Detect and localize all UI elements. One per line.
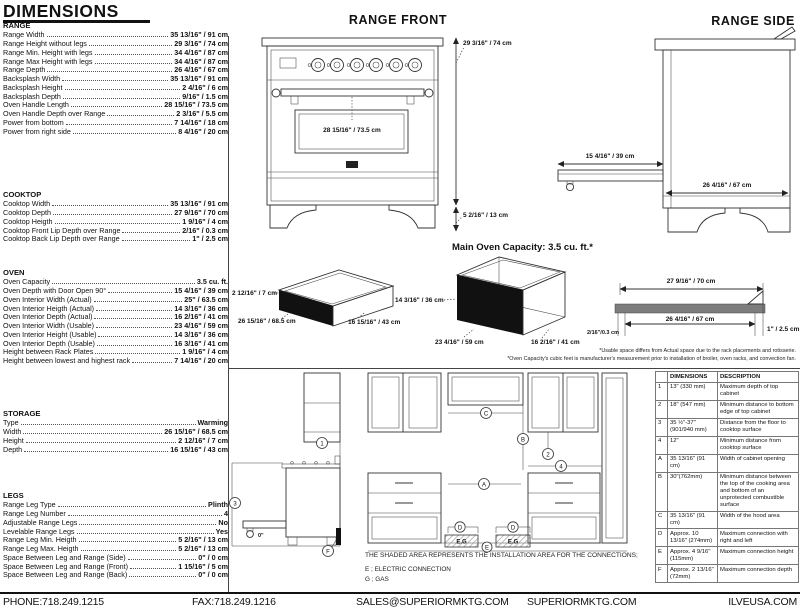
oven-width-label: 23 4/16" / 59 cm — [435, 339, 484, 346]
table-cell-dimension: 13" (330 mm) — [668, 382, 718, 400]
table-cell-description: Maximum depth of top cabinet — [718, 382, 799, 400]
svg-text:F: F — [326, 550, 330, 556]
back-lip-label: 1" / 2.5 cm — [767, 326, 800, 333]
spec-value: 0" / 0 cm — [198, 553, 228, 562]
spec-column: RANGE Range Width 35 13/16" / 91 cm Rang… — [3, 0, 228, 592]
marker-b: B — [518, 405, 529, 470]
table-cell-dimension: 35 13/16" (91 cm) — [668, 511, 718, 529]
section-oven: OVEN Oven Capacity 3.5 cu. ft. Oven Dept… — [3, 268, 228, 365]
marker-c: C — [448, 408, 523, 419]
dotted-leader — [47, 71, 172, 72]
spec-value: 23 4/16" / 59 cm — [174, 321, 228, 330]
marker-4: 4 — [528, 461, 602, 472]
dotted-leader — [52, 283, 195, 284]
section-storage: STORAGE Type Warming Width 26 15/16" / 6… — [3, 409, 228, 454]
dotted-leader — [63, 98, 180, 99]
upper-left-cabinets — [368, 373, 441, 432]
spec-value: 5 2/16" / 13 cm — [178, 535, 228, 544]
connection-area-right: E.G — [496, 535, 530, 547]
spec-row: Height between Rack Plates 1 9/16" / 4 c… — [3, 348, 228, 357]
oven-handle — [272, 89, 433, 104]
spec-label: Oven Depth with Door Open 90° — [3, 286, 106, 295]
spec-label: Range Leg Min. Heigth — [3, 535, 77, 544]
dimensions-table: DIMENSIONS DESCRIPTION 1 13" (330 mm) Ma… — [655, 371, 799, 583]
table-cell-dimension: 35 ½"-37" (901/940 mm) — [668, 418, 718, 436]
table-body: 1 13" (330 mm) Maximum depth of top cabi… — [656, 382, 799, 582]
plinth-legs — [270, 205, 435, 228]
dotted-leader — [107, 115, 174, 116]
marker-d-left: D — [448, 522, 478, 533]
marker-d-right: D — [496, 522, 530, 533]
spec-value: 16 15/16" / 43 cm — [170, 445, 228, 454]
header-description: DESCRIPTION — [718, 372, 799, 383]
spec-value: 34 4/16" / 87 cm — [174, 57, 228, 66]
table-row: F Approx. 2 13/16" (72mm) Maximum connec… — [656, 565, 799, 583]
table-cell-ref: E — [656, 547, 668, 565]
tall-cabinet — [602, 373, 627, 543]
spec-value: 2 4/16" / 6 cm — [182, 83, 228, 92]
side-depth-label: 26 4/16" / 67 cm — [703, 182, 752, 189]
spec-value: 25" / 63.5 cm — [184, 295, 228, 304]
footer-divider — [0, 592, 800, 594]
spec-label: Oven Interior Height (Usable) — [3, 330, 96, 339]
footer-website: SUPERIORMKTG.COM — [527, 596, 636, 608]
table-row: C 35 13/16" (91 cm) Width of the hood ar… — [656, 511, 799, 529]
depth-dimension: 26 4/16" / 67 cm — [666, 182, 788, 193]
spec-rows: Range Leg Type Plinth Range Leg Number 4… — [3, 501, 228, 580]
table-row: 2 18" (547 mm) Minimum distance to botto… — [656, 400, 799, 418]
svg-text:C: C — [484, 412, 489, 418]
cooktop-top-width-label: 27 9/16" / 70 cm — [667, 278, 716, 285]
dotted-leader — [73, 133, 176, 134]
spec-label: Type — [3, 418, 19, 427]
table-cell-description: Minimum distance from cooktop surface — [718, 436, 799, 454]
spec-row: Depth 16 15/16" / 43 cm — [3, 445, 228, 454]
spec-label: Cooktop Depth — [3, 208, 51, 217]
spec-row: Range Leg Max. Heigth 5 2/16" / 13 cm — [3, 544, 228, 553]
svg-text:E: E — [485, 546, 489, 552]
oven-height-label: 14 3/16" / 36 cm — [395, 297, 444, 304]
table-cell-ref: D — [656, 529, 668, 547]
dotted-leader — [129, 576, 196, 577]
control-knobs — [308, 59, 421, 72]
legend-electric: E ; ELECTRIC CONNECTION — [365, 566, 451, 573]
table-cell-description: Distance from the floor to cooktop surfa… — [718, 418, 799, 436]
spec-value: Plinth — [208, 500, 228, 509]
svg-text:E.G: E.G — [456, 540, 467, 546]
header-dimensions: DIMENSIONS — [668, 372, 718, 383]
spec-label: Power from bottom — [3, 118, 64, 127]
spec-value: 28 15/16" / 73.5 cm — [164, 100, 228, 109]
spec-row: Type Warming — [3, 419, 228, 428]
marker-a: A — [448, 479, 521, 490]
table-cell-dimension: Approx. 4 9/16" (115mm) — [668, 547, 718, 565]
spec-label: Height between lowest and highest rack — [3, 356, 130, 365]
dotted-leader — [66, 124, 173, 125]
drawer-width-label: 26 15/16" / 68.5 cm — [238, 318, 296, 325]
table-cell-ref: A — [656, 454, 668, 472]
svg-text:E.G: E.G — [508, 540, 519, 546]
spec-row: Oven Depth with Door Open 90° 15 4/16" /… — [3, 286, 228, 295]
section-range: RANGE Range Width 35 13/16" / 91 cm Rang… — [3, 21, 228, 136]
spec-row: Height between lowest and highest rack 7… — [3, 356, 228, 365]
spec-row: Range Max Height with legs 34 4/16" / 87… — [3, 57, 228, 66]
dotted-leader — [26, 442, 176, 443]
svg-text:D: D — [511, 526, 516, 532]
spec-label: Cooktop Back Lip Depth over Range — [3, 234, 120, 243]
table-cell-description: Maximum connection depth — [718, 565, 799, 583]
installation-note: THE SHADED AREA REPRESENTS THE INSTALLAT… — [365, 552, 657, 559]
spec-value: 1" / 2.5 cm — [192, 234, 228, 243]
section-title: STORAGE — [3, 409, 228, 419]
marker-e: E — [482, 542, 492, 552]
dotted-leader — [65, 89, 181, 90]
legs-height-label: 5 2/16" / 13 cm — [463, 212, 508, 219]
marker-1: 1 — [317, 438, 328, 449]
table-cell-ref: C — [656, 511, 668, 529]
dotted-leader — [23, 433, 162, 434]
dotted-leader — [53, 214, 172, 215]
dotted-leader — [81, 550, 177, 551]
installation-side-view: 1 0" 3 F — [228, 370, 364, 560]
oven-interior-diagram: 14 3/16" / 36 cm 23 4/16" / 59 cm 16 2/1… — [385, 252, 597, 348]
spec-row: Range Leg Min. Heigth 5 2/16" / 13 cm — [3, 536, 228, 545]
table-row: B 30"(762mm) Minimum distance between th… — [656, 472, 799, 511]
spec-label: Oven Interior Depth (Actual) — [3, 312, 92, 321]
spec-label: Cooktop Heigth — [3, 217, 53, 226]
spec-row: Space Between Leg and Range (Back) 0" / … — [3, 571, 228, 580]
spec-row: Oven Handle Depth over Range 2 3/16" / 5… — [3, 109, 228, 118]
spec-label: Cooktop Front Lip Depth over Range — [3, 226, 120, 235]
table-cell-ref: 2 — [656, 400, 668, 418]
footer-email: SALES@SUPERIORMKTG.COM — [356, 596, 509, 608]
spec-label: Range Depth — [3, 65, 45, 74]
open-door — [558, 170, 663, 191]
spec-value: Warming — [198, 418, 228, 427]
spec-value: 2 12/16" / 7 cm — [178, 436, 228, 445]
dotted-leader — [58, 506, 206, 507]
oven-depth-label: 16 2/16" / 41 cm — [531, 339, 580, 346]
wall-cabinet — [304, 373, 340, 442]
legs-dimension: 5 2/16" / 13 cm — [456, 207, 508, 231]
lip-labels: 2/16"/0.3 cm 1" / 2.5 cm — [587, 326, 800, 336]
dotted-leader — [24, 451, 168, 452]
spec-row: Backsplash Depth 9/16" / 1.5 cm — [3, 92, 228, 101]
table-cell-description: Minimum distance to bottom edge of top c… — [718, 400, 799, 418]
top-width-dimension: 27 9/16" / 70 cm — [620, 278, 763, 295]
spec-row: Oven Capacity 3.5 cu. ft. — [3, 278, 228, 287]
table-cell-ref: B — [656, 472, 668, 511]
dotted-leader — [96, 310, 172, 311]
spec-label: Cooktop Width — [3, 199, 50, 208]
spec-label: Oven Interior Heigth (Actual) — [3, 304, 94, 313]
spec-value: 16 3/16" / 41 cm — [174, 339, 228, 348]
dotted-leader — [89, 45, 172, 46]
door-latch — [346, 161, 358, 168]
spec-value: 0" / 0 cm — [198, 570, 228, 579]
spec-label: Oven Capacity — [3, 277, 50, 286]
height-dimension: 29 3/16" / 74 cm — [456, 38, 512, 205]
spec-label: Levelable Range Legs — [3, 527, 75, 536]
table-cell-dimension: 12" — [668, 436, 718, 454]
dotted-leader — [122, 232, 180, 233]
spec-rows: Cooktop Width 35 13/16" / 91 cm Cooktop … — [3, 200, 228, 244]
front-lip-label: 2/16"/0.3 cm — [587, 330, 619, 336]
spec-row: Width 26 15/16" / 68.5 cm — [3, 427, 228, 436]
spec-label: Depth — [3, 445, 22, 454]
marker-3-bracket: 3 — [230, 463, 341, 546]
table-cell-ref: F — [656, 565, 668, 583]
spec-value: 29 3/16" / 74 cm — [174, 39, 228, 48]
table-row: D Approx. 10 13/16" (274mm) Maximum conn… — [656, 529, 799, 547]
spec-value: 14 3/16" / 36 cm — [174, 304, 228, 313]
section-title: COOKTOP — [3, 190, 228, 200]
spec-value: 7 14/16" / 20 cm — [174, 356, 228, 365]
dotted-leader — [97, 345, 172, 346]
spec-label: Oven Handle Length — [3, 100, 69, 109]
dotted-leader — [79, 524, 216, 525]
range-side-drawing: 15 4/16" / 39 cm 26 4/16" / 67 cm — [540, 25, 800, 237]
spec-sheet: DIMENSIONS RANGE Range Width 35 13/16" /… — [0, 0, 800, 610]
table-cell-dimension: Approx. 2 13/16" (72mm) — [668, 565, 718, 583]
spec-label: Oven Interior Width (Usable) — [3, 321, 94, 330]
door-open-dimension: 15 4/16" / 39 cm — [558, 153, 663, 164]
spec-row: Range Width 35 13/16" / 91 cm — [3, 31, 228, 40]
range-height-label: 29 3/16" / 74 cm — [463, 40, 512, 47]
spec-row: Oven Interior Depth (Actual) 16 2/16" / … — [3, 313, 228, 322]
spec-row: Space Between Leg and Range (Front) 1 15… — [3, 562, 228, 571]
spec-row: Adjustable Range Legs No — [3, 518, 228, 527]
spec-value: 14 3/16" / 36 cm — [174, 330, 228, 339]
spec-value: 35 13/16" / 91 cm — [170, 30, 228, 39]
oven-window: 28 15/16" / 73.5 cm — [295, 97, 408, 153]
spec-row: Cooktop Width 35 13/16" / 91 cm — [3, 200, 228, 209]
table-row: 3 35 ½"-37" (901/940 mm) Distance from t… — [656, 418, 799, 436]
legend-gas: G ; GAS — [365, 576, 389, 583]
dotted-leader — [77, 533, 214, 534]
header-ref — [656, 372, 668, 383]
marker-2: 2 — [543, 432, 554, 460]
spec-value: No — [218, 518, 228, 527]
section-title: LEGS — [3, 491, 228, 501]
spec-label: Range Width — [3, 30, 45, 39]
table-row: 1 13" (330 mm) Maximum depth of top cabi… — [656, 382, 799, 400]
installation-front-view: C B 2 4 — [363, 370, 653, 554]
footer-brand: ILVEUSA.COM — [728, 596, 797, 608]
spec-row: Cooktop Depth 27 9/16" / 70 cm — [3, 208, 228, 217]
spec-label: Space Between Leg and Range (Back) — [3, 570, 127, 579]
spec-row: Cooktop Heigth 1 9/16" / 4 cm — [3, 217, 228, 226]
spec-row: Range Depth 26 4/16" / 67 cm — [3, 66, 228, 75]
marker-f-connection: F — [323, 528, 342, 557]
spec-value: 5 2/16" / 13 cm — [178, 544, 228, 553]
range-side-small — [282, 456, 340, 545]
table-row: E Approx. 4 9/16" (115mm) Maximum connec… — [656, 547, 799, 565]
spec-row: Oven Interior Depth (Usable) 16 3/16" / … — [3, 339, 228, 348]
dotted-leader — [122, 240, 191, 241]
drawer-height-label: 2 12/16" / 7 cm — [232, 290, 277, 297]
table-cell-dimension: 35 13/16" (91 cm) — [668, 454, 718, 472]
spec-row: Range Height without legs 29 3/16" / 74 … — [3, 39, 228, 48]
footnote-capacity: *Oven Capacity's cubic feet is manufactu… — [236, 356, 796, 362]
spec-row: Levelable Range Legs Yes — [3, 527, 228, 536]
spec-label: Space Between Leg and Range (Side) — [3, 553, 126, 562]
plinth-legs — [668, 208, 790, 232]
section-cooktop: COOKTOP Cooktop Width 35 13/16" / 91 cm … — [3, 190, 228, 243]
spec-label: Range Leg Type — [3, 500, 56, 509]
spec-label: Oven Interior Depth (Usable) — [3, 339, 95, 348]
spec-value: 9/16" / 1.5 cm — [182, 92, 228, 101]
dotted-leader — [132, 362, 172, 363]
dotted-leader — [130, 568, 176, 569]
open-door-small: 0" — [243, 521, 286, 539]
dotted-leader — [95, 353, 180, 354]
spec-rows: Range Width 35 13/16" / 91 cm Range Heig… — [3, 31, 228, 136]
spec-row: Cooktop Back Lip Depth over Range 1" / 2… — [3, 235, 228, 244]
spec-row: Oven Handle Length 28 15/16" / 73.5 cm — [3, 101, 228, 110]
dotted-leader — [94, 301, 183, 302]
table-cell-dimension: 18" (547 mm) — [668, 400, 718, 418]
spec-label: Range Leg Number — [3, 509, 66, 518]
section-title: RANGE — [3, 21, 228, 31]
dotted-leader — [94, 318, 172, 319]
spec-row: Oven Interior Width (Actual) 25" / 63.5 … — [3, 295, 228, 304]
svg-text:B: B — [521, 438, 525, 444]
spec-label: Height between Rack Plates — [3, 347, 93, 356]
cooktop-inner-width-label: 26 4/16" / 67 cm — [666, 316, 715, 323]
spec-value: 1 9/16" / 4 cm — [182, 217, 228, 226]
table-cell-description: Width of the hood area — [718, 511, 799, 529]
section-title: OVEN — [3, 268, 228, 278]
spec-label: Width — [3, 427, 21, 436]
spec-value: 34 4/16" / 87 cm — [174, 48, 228, 57]
spec-label: Adjustable Range Legs — [3, 518, 77, 527]
spec-row: Range Leg Type Plinth — [3, 501, 228, 510]
backsplash — [262, 38, 443, 46]
spec-value: 7 14/16" / 18 cm — [174, 118, 228, 127]
spec-label: Height — [3, 436, 24, 445]
spec-row: Power from bottom 7 14/16" / 18 cm — [3, 118, 228, 127]
spec-label: Backsplash Width — [3, 74, 60, 83]
table-cell-ref: 1 — [656, 382, 668, 400]
svg-text:A: A — [482, 483, 486, 489]
spec-value: 8 4/16" / 20 cm — [178, 127, 228, 136]
section-legs: LEGS Range Leg Type Plinth Range Leg Num… — [3, 491, 228, 579]
spec-value: 3.5 cu. ft. — [197, 277, 228, 286]
spec-value: 16 2/16" / 41 cm — [174, 312, 228, 321]
cooktop-bar — [615, 291, 765, 313]
table-cell-ref: 3 — [656, 418, 668, 436]
spec-value: 35 13/16" / 91 cm — [170, 199, 228, 208]
dotted-leader — [52, 205, 168, 206]
spec-row: Oven Interior Heigth (Actual) 14 3/16" /… — [3, 304, 228, 313]
dotted-leader — [55, 223, 181, 224]
footer-fax: FAX:718.249.1216 — [192, 596, 276, 608]
table-header-row: DIMENSIONS DESCRIPTION — [656, 372, 799, 383]
dotted-leader — [95, 54, 173, 55]
dotted-leader — [96, 327, 172, 328]
base-right-cabinets — [528, 473, 600, 543]
spec-rows: Type Warming Width 26 15/16" / 68.5 cm H… — [3, 419, 228, 454]
dotted-leader — [79, 541, 177, 542]
table-cell-description: Maximum connection with right and left — [718, 529, 799, 547]
spec-row: Backsplash Width 35 13/16" / 91 cm — [3, 74, 228, 83]
spec-value: 2/16" / 0.3 cm — [182, 226, 228, 235]
spec-value: 1 9/16" / 4 cm — [182, 347, 228, 356]
dotted-leader — [108, 292, 172, 293]
spec-row: Oven Interior Width (Usable) 23 4/16" / … — [3, 321, 228, 330]
cooktop-profile-diagram: 27 9/16" / 70 cm 26 4/16" / 67 cm 2/16"/… — [585, 252, 800, 348]
spec-label: Power from right side — [3, 127, 71, 136]
spec-value: 26 4/16" / 67 cm — [174, 65, 228, 74]
spec-value: 35 13/16" / 91 cm — [170, 74, 228, 83]
range-front-drawing: 28 15/16" / 73.5 cm 29 3/16" / 74 cm 5 2… — [253, 25, 543, 237]
dotted-leader — [98, 336, 172, 337]
footnote-usable: *Usable space differs from Actual space … — [236, 348, 796, 354]
base-left-cabinets — [368, 473, 441, 543]
spec-rows: Oven Capacity 3.5 cu. ft. Oven Depth wit… — [3, 278, 228, 366]
table-row: A 35 13/16" (91 cm) Width of cabinet ope… — [656, 454, 799, 472]
upper-right-cabinets — [528, 373, 598, 432]
dotted-leader — [47, 36, 169, 37]
table-cell-dimension: Approx. 10 13/16" (274mm) — [668, 529, 718, 547]
spec-label: Oven Interior Width (Actual) — [3, 295, 92, 304]
spec-value: 2 3/16" / 5.5 cm — [176, 109, 228, 118]
dotted-leader — [62, 80, 168, 81]
spec-label: Backsplash Depth — [3, 92, 61, 101]
spec-row: Range Leg Number 4 — [3, 509, 228, 518]
dotted-leader — [21, 424, 196, 425]
oven-box — [457, 257, 565, 335]
table-cell-description: Width of cabinet opening — [718, 454, 799, 472]
spec-row: Height 2 12/16" / 7 cm — [3, 436, 228, 445]
zero-gap-label: 0" — [258, 533, 264, 539]
spec-row: Space Between Leg and Range (Side) 0" / … — [3, 553, 228, 562]
spec-label: Range Max Height with legs — [3, 57, 93, 66]
table-cell-ref: 4 — [656, 436, 668, 454]
cooktop-slab — [655, 27, 795, 50]
table-cell-dimension: 30"(762mm) — [668, 472, 718, 511]
drawer-box — [279, 270, 393, 326]
control-display — [280, 58, 296, 68]
spec-label: Range Leg Max. Heigth — [3, 544, 79, 553]
spec-label: Range Min. Height with legs — [3, 48, 93, 57]
spec-label: Space Between Leg and Range (Front) — [3, 562, 128, 571]
spec-value: 27 9/16" / 70 cm — [174, 208, 228, 217]
connection-area-left: E.G — [445, 535, 478, 547]
dotted-leader — [95, 63, 173, 64]
spec-row: Range Min. Height with legs 34 4/16" / 8… — [3, 48, 228, 57]
spec-value: 26 15/16" / 68.5 cm — [164, 427, 228, 436]
dotted-leader — [68, 515, 222, 516]
dotted-leader — [128, 559, 197, 560]
spec-value: 1 15/16" / 5 cm — [178, 562, 228, 571]
footer-phone: PHONE:718.249.1215 — [3, 596, 104, 608]
spec-row: Oven Interior Height (Usable) 14 3/16" /… — [3, 330, 228, 339]
table-cell-description: Maximum connection height — [718, 547, 799, 565]
spec-value: Yes — [216, 527, 228, 536]
spec-row: Cooktop Front Lip Depth over Range 2/16"… — [3, 226, 228, 235]
spec-row: Backsplash Height 2 4/16" / 6 cm — [3, 83, 228, 92]
spec-label: Backsplash Height — [3, 83, 63, 92]
handle-length-label: 28 15/16" / 73.5 cm — [323, 127, 381, 134]
door-open-label: 15 4/16" / 39 cm — [586, 153, 635, 160]
spec-value: 15 4/16" / 39 cm — [174, 286, 228, 295]
dotted-leader — [71, 106, 162, 107]
spec-row: Power from right side 8 4/16" / 20 cm — [3, 127, 228, 136]
spec-label: Range Height without legs — [3, 39, 87, 48]
svg-text:D: D — [458, 526, 463, 532]
